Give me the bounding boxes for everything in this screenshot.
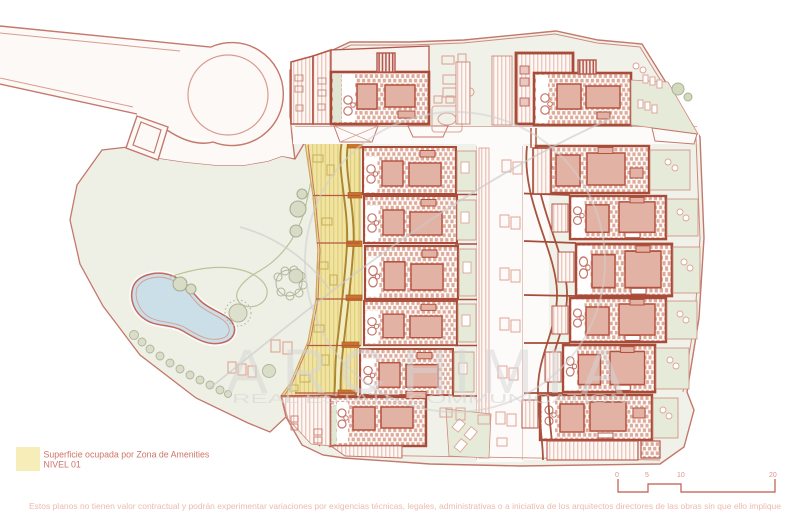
svg-text:Superficie ocupada por Zona de: Superficie ocupada por Zona de Amenities (44, 450, 210, 460)
svg-text:5: 5 (645, 472, 649, 479)
svg-text:REAL ESTATE COMMUNICATION: REAL ESTATE COMMUNICATION (232, 392, 628, 406)
svg-text:10: 10 (677, 472, 685, 479)
svg-text:0: 0 (615, 472, 619, 479)
svg-text:20: 20 (769, 472, 777, 479)
svg-text:Estos planos no tienen valor c: Estos planos no tienen valor contractual… (29, 502, 782, 511)
svg-text:NIVEL 01: NIVEL 01 (44, 460, 81, 470)
